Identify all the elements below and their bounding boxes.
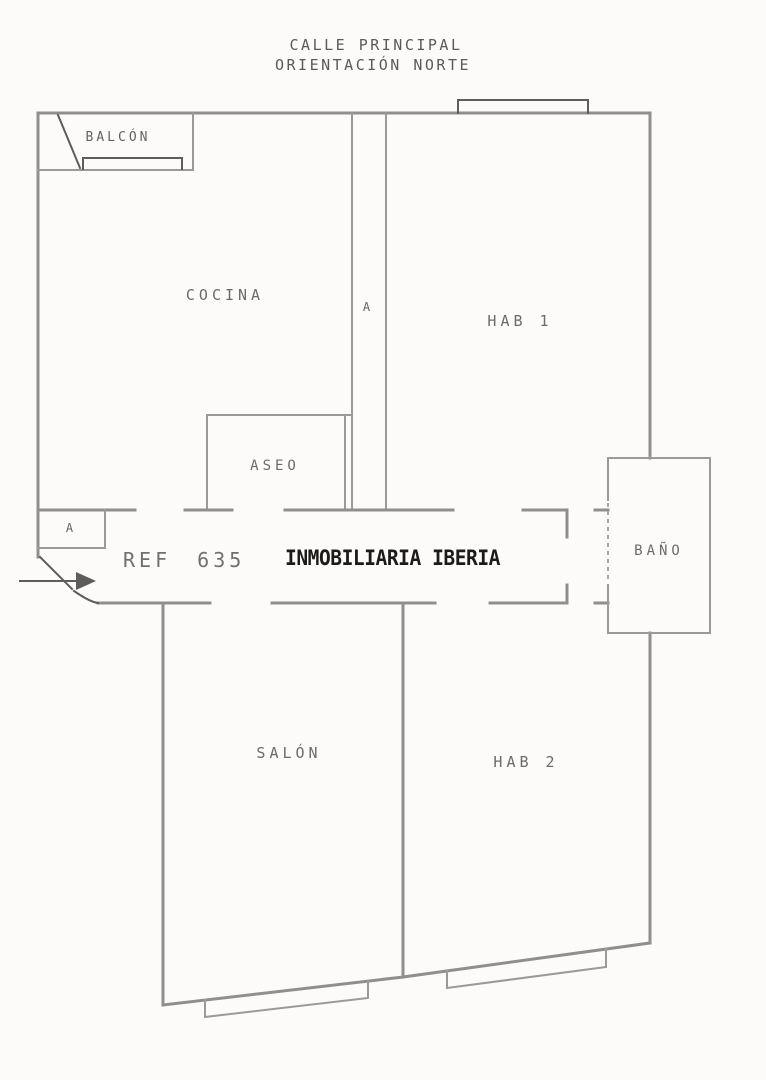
floor-plan: CALLE PRINCIPAL ORIENTACIÓN NORTE BALCÓN… (0, 0, 766, 1080)
street-label-line2: ORIENTACIÓN NORTE (275, 55, 471, 74)
room-label-cocina: COCINA (186, 286, 264, 304)
salon-window (205, 981, 368, 1017)
room-label-salon: SALÓN (256, 743, 321, 762)
reference-label: REF 635 (123, 548, 245, 572)
lower-room-walls (163, 603, 650, 1017)
entrance-arrow-icon (76, 572, 96, 590)
room-label-balcon: BALCÓN (86, 129, 151, 145)
balcony-railing (83, 158, 182, 169)
exterior-walls (38, 113, 650, 943)
room-label-vent-shaft: A (363, 300, 371, 314)
room-label-hab1: HAB 1 (487, 312, 552, 330)
entrance-door-swing (40, 557, 72, 589)
entrance (20, 557, 98, 603)
hab2-bottom-wall (403, 943, 650, 977)
hab1-window (458, 100, 588, 113)
room-label-hab2: HAB 2 (493, 753, 558, 771)
watermark-label: INMOBILIARIA IBERIA (285, 546, 501, 570)
street-label-line1: CALLE PRINCIPAL (290, 36, 463, 54)
room-label-aseo: ASEO (250, 458, 300, 474)
entrance-curve (74, 591, 98, 603)
floor-plan-page: CALLE PRINCIPAL ORIENTACIÓN NORTE BALCÓN… (0, 0, 766, 1080)
room-label-bano: BAÑO (634, 542, 684, 559)
balcony-door-swing (58, 115, 80, 168)
room-label-closet: A (66, 521, 74, 535)
